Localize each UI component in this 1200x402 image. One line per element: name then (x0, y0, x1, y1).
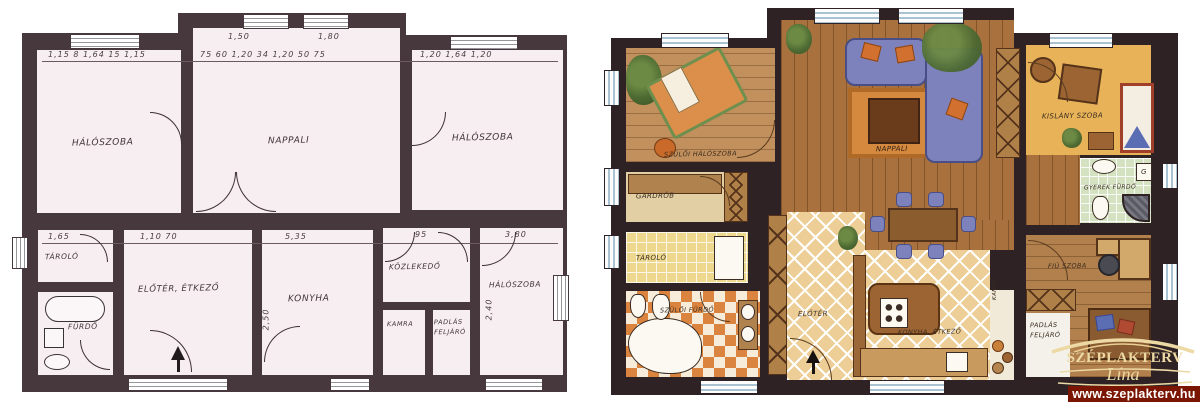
website-bar: www.szeplakterv.hu (1068, 386, 1200, 402)
brand-watermark: SZÉPLAKTERV Lína www.szeplakterv.hu (0, 0, 1200, 402)
floor-plans-canvas: 1,15 8 1,64 15 1,15 1,50 1,80 75 60 1,20… (0, 0, 1200, 402)
website-url-link[interactable]: www.szeplakterv.hu (1072, 387, 1196, 401)
